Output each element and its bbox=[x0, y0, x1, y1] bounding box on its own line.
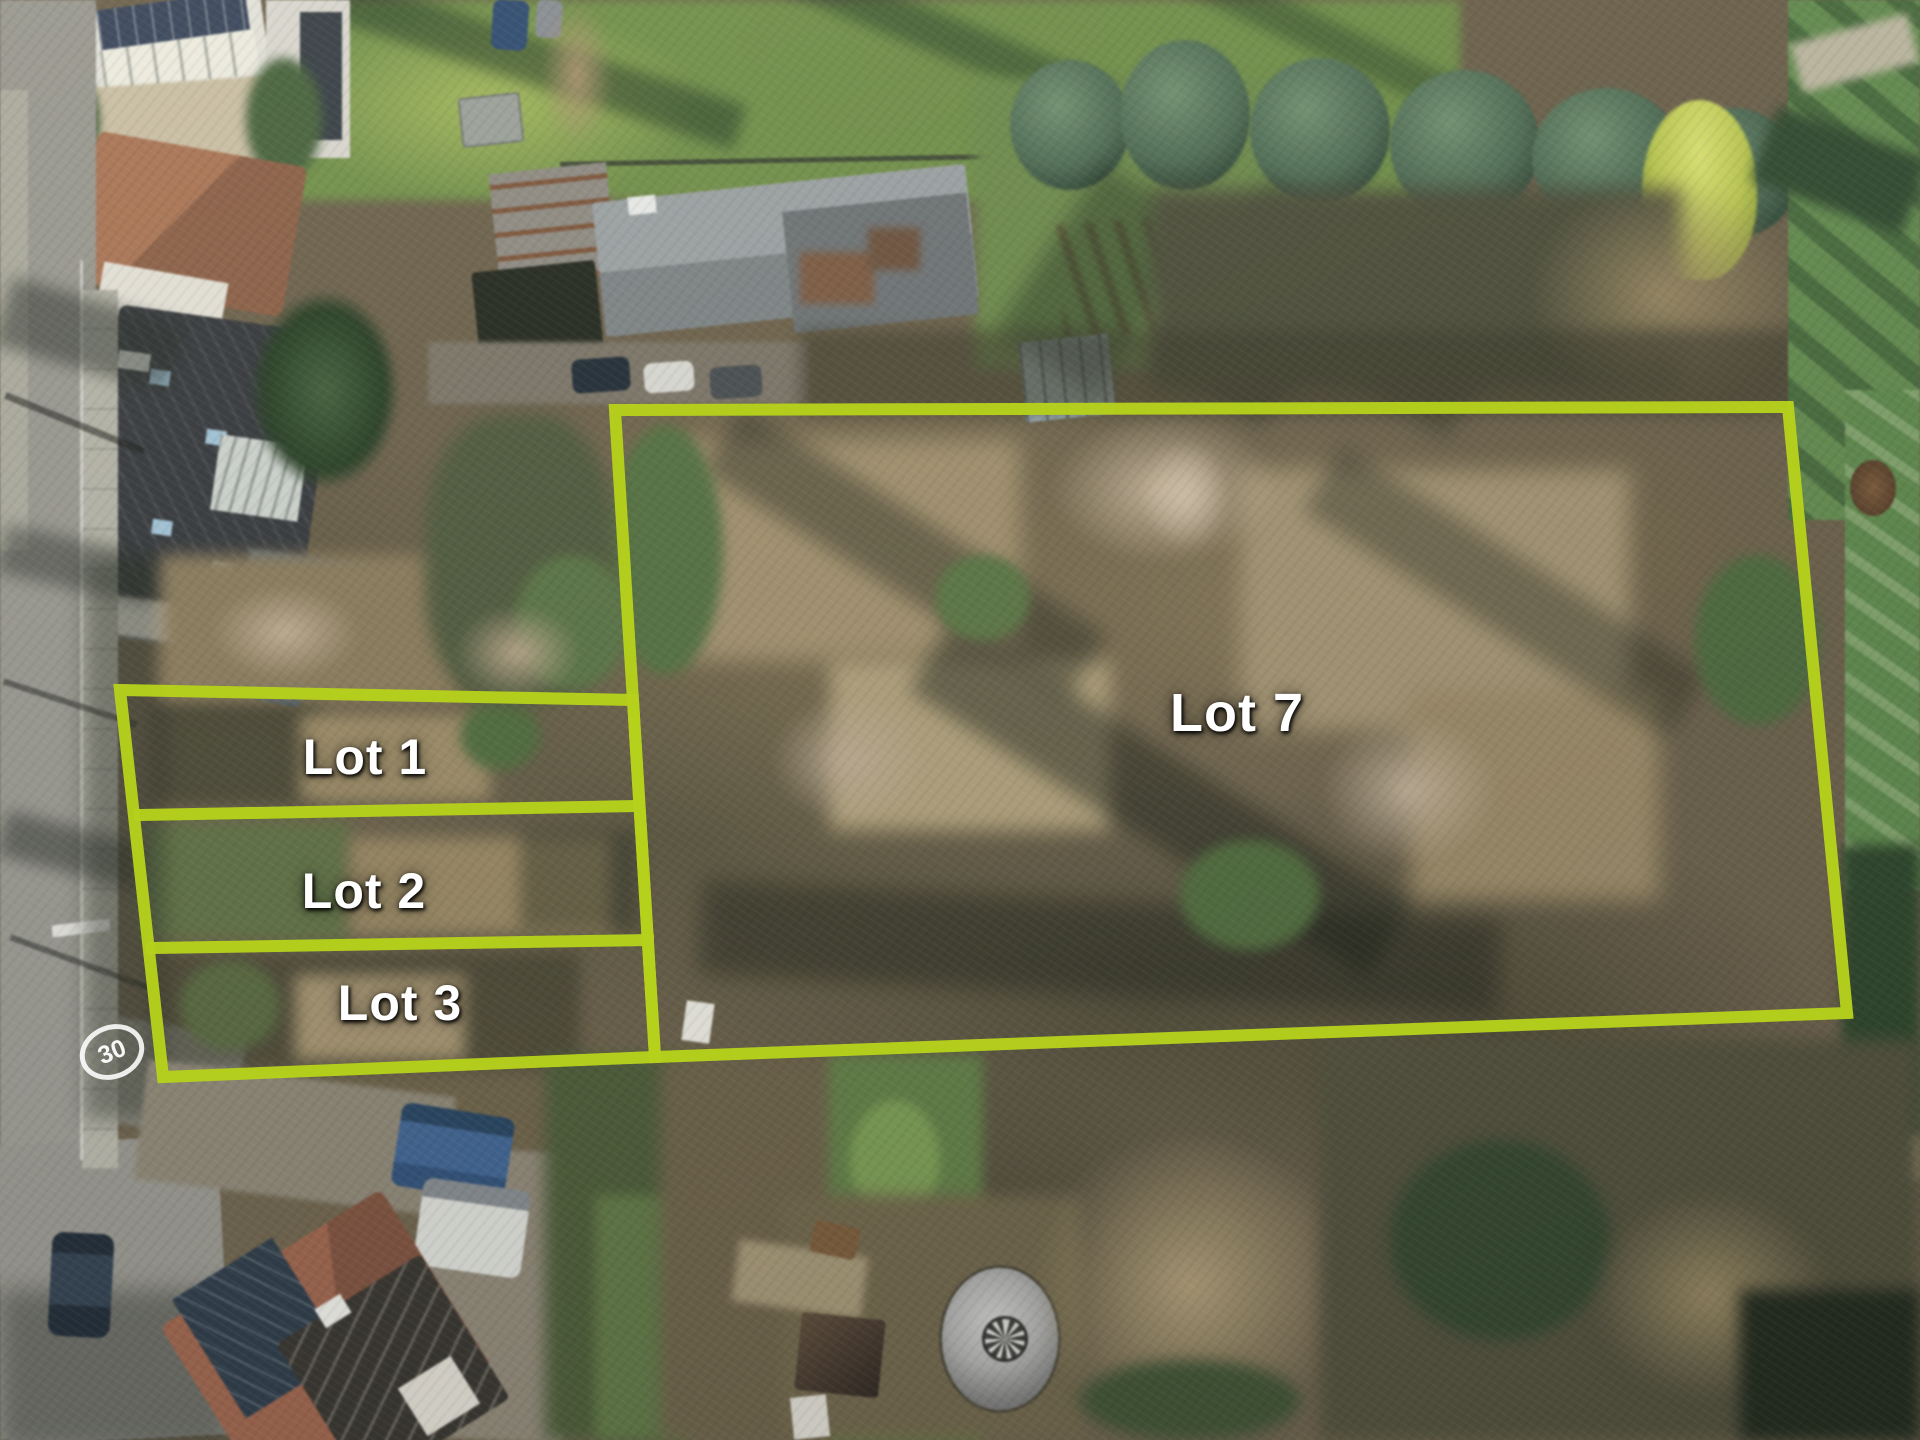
lot1-lot2-divider bbox=[140, 806, 639, 815]
lot-7-label: Lot 7 bbox=[1170, 682, 1304, 744]
lot-3-label: Lot 3 bbox=[338, 974, 462, 1032]
aerial-photo: Lot 1 Lot 2 Lot 3 Lot 7 30 bbox=[0, 0, 1920, 1440]
lot2-lot3-divider bbox=[152, 940, 648, 948]
lot-1-label: Lot 1 bbox=[303, 728, 427, 786]
speed-limit-30-text: 30 bbox=[94, 1033, 131, 1070]
lot-boundaries-overlay bbox=[0, 0, 1920, 1440]
lot-2-label: Lot 2 bbox=[302, 862, 426, 920]
